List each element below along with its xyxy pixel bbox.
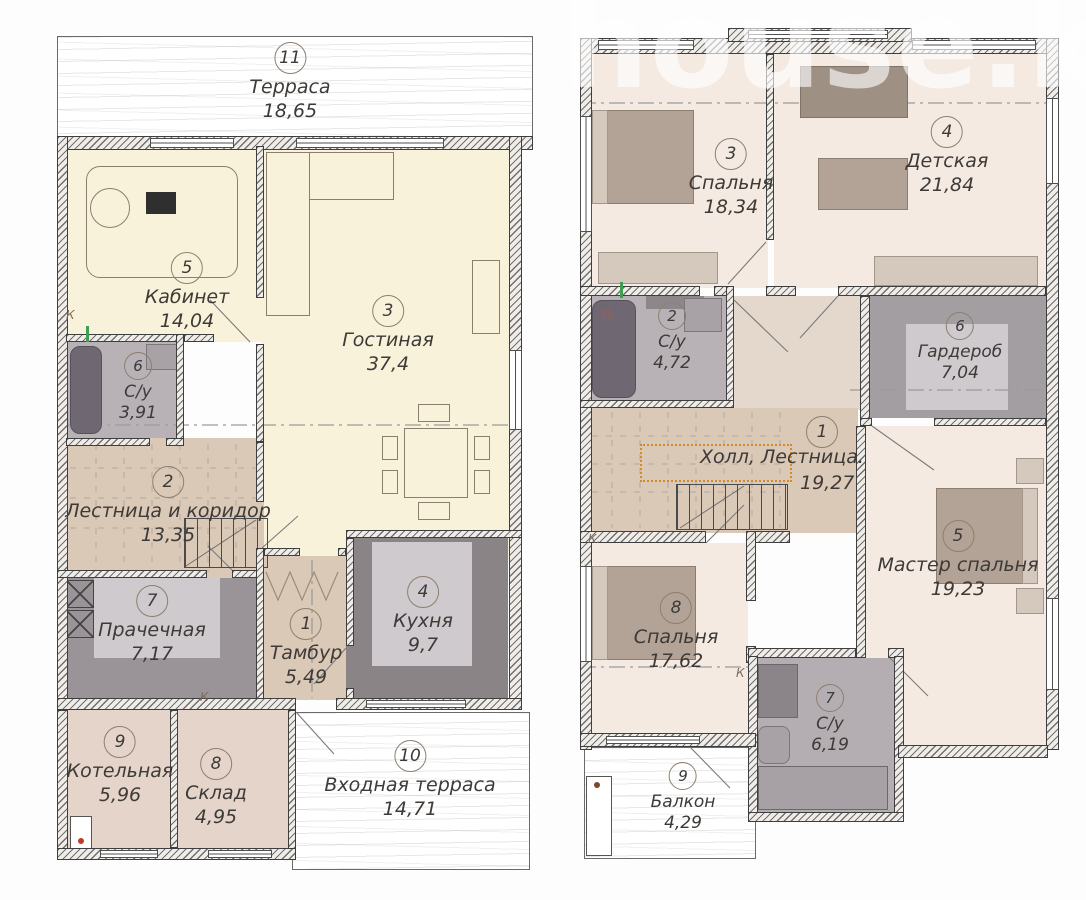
room-area: 14,71 bbox=[324, 798, 495, 822]
wall-segment bbox=[346, 538, 354, 646]
room-area: 5,49 bbox=[270, 666, 343, 690]
room-name: Балкон bbox=[651, 792, 716, 813]
monitor bbox=[146, 192, 176, 214]
room-area: 18,34 bbox=[689, 196, 774, 220]
room-number: 5 bbox=[171, 252, 203, 284]
wall-segment bbox=[766, 286, 796, 296]
room-label-kabinet: 5 Кабинет 14,04 bbox=[145, 252, 229, 334]
room-number: 6 bbox=[946, 312, 974, 340]
wall-segment bbox=[184, 334, 214, 342]
shower-tray bbox=[758, 766, 888, 810]
room-area: 4,95 bbox=[185, 806, 247, 830]
window bbox=[509, 350, 522, 430]
room-name: Гостиная bbox=[342, 329, 434, 353]
room-name: Терраса bbox=[249, 76, 330, 100]
wall-segment bbox=[726, 286, 734, 408]
room-area: 17,62 bbox=[634, 650, 719, 674]
room-number: 6 bbox=[124, 352, 152, 380]
wall-segment bbox=[860, 418, 872, 426]
room-name: Холл, Лестница. bbox=[700, 446, 864, 468]
wall-segment bbox=[934, 418, 1046, 426]
boiler-indicator bbox=[78, 838, 84, 844]
sofa bbox=[266, 152, 310, 316]
bed-pillow bbox=[592, 566, 608, 660]
room-number: 3 bbox=[372, 295, 404, 327]
wall-segment bbox=[256, 548, 264, 700]
window bbox=[748, 30, 888, 39]
wall-segment bbox=[898, 745, 1048, 758]
room-name: Кабинет bbox=[145, 286, 229, 310]
wall-segment bbox=[338, 548, 346, 556]
room-label-detskaya: 4 Детская 21,84 bbox=[906, 116, 989, 198]
wall-segment bbox=[256, 344, 264, 442]
wall-segment bbox=[894, 656, 904, 822]
chair bbox=[418, 502, 450, 520]
room-name: С/у bbox=[811, 714, 849, 735]
room-area: 21,84 bbox=[906, 174, 989, 198]
room-number: 10 bbox=[394, 740, 426, 772]
wall-segment bbox=[288, 710, 296, 850]
window bbox=[208, 850, 272, 858]
window bbox=[366, 700, 466, 708]
window bbox=[1046, 98, 1059, 184]
room-number: 7 bbox=[136, 585, 168, 617]
room-label-garderob: 6 Гардероб 7,04 bbox=[918, 312, 1003, 385]
office-chair bbox=[90, 188, 130, 228]
room-label-terrasa: 11 Терраса 18,65 bbox=[249, 42, 330, 124]
room-label-su7: 7 С/у 6,19 bbox=[811, 684, 849, 757]
vent-mark bbox=[620, 282, 623, 298]
room-area: 6,19 bbox=[811, 735, 849, 756]
room-number: 9 bbox=[669, 762, 697, 790]
shaft-symbol bbox=[66, 580, 94, 608]
shaft-symbol bbox=[66, 610, 94, 638]
window bbox=[150, 138, 234, 148]
vent-mark bbox=[86, 326, 89, 342]
room-name: Склад bbox=[185, 782, 247, 806]
room-label-prachechnaya: 7 Прачечная 7,17 bbox=[98, 585, 206, 667]
window bbox=[100, 850, 158, 858]
room-number: 3 bbox=[715, 138, 747, 170]
room-name: Лестница и коридор bbox=[65, 500, 271, 524]
wall-segment bbox=[57, 698, 296, 710]
wall-segment bbox=[57, 570, 207, 578]
room-area: 9,7 bbox=[393, 634, 453, 658]
room-label-tambur: 1 Тамбур 5,49 bbox=[270, 608, 343, 690]
room-label-spalnya8: 8 Спальня 17,62 bbox=[634, 592, 719, 674]
room-number: 2 bbox=[152, 466, 184, 498]
wardrobe bbox=[598, 252, 718, 284]
room-area: 7,17 bbox=[98, 643, 206, 667]
wardrobe bbox=[874, 256, 1038, 286]
room-number: 2 bbox=[658, 302, 686, 330]
wall-segment bbox=[256, 146, 264, 298]
washing-machine bbox=[758, 664, 798, 718]
room-number: 4 bbox=[931, 116, 963, 148]
panel-indicator bbox=[594, 782, 600, 788]
room-label-terrasa-entry: 10 Входная терраса 14,71 bbox=[324, 740, 495, 822]
wall-segment bbox=[746, 531, 756, 601]
window bbox=[296, 138, 444, 148]
room-label-su1: 6 С/у 3,91 bbox=[119, 352, 157, 425]
room-area: 19,23 bbox=[877, 578, 1038, 602]
room-label-su2: 2 С/у 4,72 bbox=[653, 302, 691, 375]
room-number: 8 bbox=[660, 592, 692, 624]
room-area: 4,72 bbox=[653, 353, 691, 374]
room-name: Спальня bbox=[634, 626, 719, 650]
wall-segment bbox=[838, 286, 1046, 296]
room-area: 14,04 bbox=[145, 310, 229, 334]
room-name: Детская bbox=[906, 150, 989, 174]
cabinet bbox=[472, 260, 500, 334]
room-name: Кухня bbox=[393, 610, 453, 634]
room-name: Гардероб bbox=[918, 342, 1003, 363]
dresser bbox=[818, 158, 908, 210]
room-area: 37,4 bbox=[342, 353, 434, 377]
window bbox=[598, 40, 694, 50]
room-number: 8 bbox=[200, 748, 232, 780]
room-name: Мастер спальня bbox=[877, 554, 1038, 578]
room-number: 7 bbox=[816, 684, 844, 712]
k-annotation: К bbox=[66, 308, 75, 322]
wall-segment bbox=[580, 400, 734, 408]
wall-segment bbox=[166, 438, 184, 446]
room-name: С/у bbox=[653, 332, 691, 353]
room-area: 7,04 bbox=[918, 363, 1003, 384]
nightstand bbox=[1016, 458, 1044, 484]
bed bbox=[800, 66, 908, 118]
room-label-kotelnaya: 9 Котельная 5,96 bbox=[67, 726, 174, 808]
wall-segment bbox=[232, 570, 257, 578]
p-annotation: П. bbox=[602, 308, 616, 323]
wall-segment bbox=[176, 334, 184, 446]
room-name: Спальня bbox=[689, 172, 774, 196]
hall-corridor bbox=[734, 296, 860, 410]
chair bbox=[474, 436, 490, 460]
room-number: 9 bbox=[104, 726, 136, 758]
wall-segment bbox=[860, 296, 870, 426]
wall-segment bbox=[748, 648, 856, 658]
room-number: 1 bbox=[290, 608, 322, 640]
room-label-spalnya3: 3 Спальня 18,34 bbox=[689, 138, 774, 220]
boiler bbox=[70, 816, 92, 850]
window bbox=[580, 566, 592, 662]
k-annotation: К. bbox=[588, 532, 600, 546]
wall-segment bbox=[57, 136, 533, 150]
bed-pillow bbox=[592, 110, 608, 204]
room-label-gostinaya: 3 Гостиная 37,4 bbox=[342, 295, 434, 377]
dining-table bbox=[404, 428, 468, 498]
k-annotation: К bbox=[200, 690, 209, 704]
wall-segment bbox=[748, 812, 904, 822]
floor-plan-sheet: 11 Терраса 18,65 5 Кабинет 14,04 3 Гости… bbox=[0, 0, 1086, 900]
room-area: 4,29 bbox=[651, 813, 716, 834]
room-area: 18,65 bbox=[249, 100, 330, 124]
room-name: Прачечная bbox=[98, 619, 206, 643]
room-area: 13,35 bbox=[65, 524, 271, 548]
chair bbox=[418, 404, 450, 422]
window bbox=[606, 736, 700, 744]
room-name: Тамбур bbox=[270, 642, 343, 666]
window bbox=[580, 116, 592, 232]
room-label-kuhnya: 4 Кухня 9,7 bbox=[393, 576, 453, 658]
chair bbox=[382, 470, 398, 494]
bathtub bbox=[70, 346, 102, 434]
room-number: 11 bbox=[274, 42, 306, 74]
room-label-koridor: 2 Лестница и коридор 13,35 bbox=[65, 466, 271, 548]
wall-segment bbox=[66, 438, 150, 446]
room-area: 3,91 bbox=[119, 403, 157, 424]
room-name: Котельная bbox=[67, 760, 174, 784]
wall-segment bbox=[57, 136, 68, 710]
wall-segment bbox=[264, 548, 300, 556]
toilet bbox=[758, 726, 790, 764]
wall-segment bbox=[346, 530, 522, 538]
stairs bbox=[676, 484, 788, 530]
k-annotation: К bbox=[736, 666, 745, 680]
room-area: 19,27 bbox=[800, 472, 854, 494]
room-label-sklad: 8 Склад 4,95 bbox=[185, 748, 247, 830]
room-number: 1 bbox=[806, 416, 838, 448]
chair bbox=[382, 436, 398, 460]
room-number: 4 bbox=[407, 576, 439, 608]
room-label-master: 5 Мастер спальня 19,23 bbox=[877, 520, 1038, 602]
room-name: Входная терраса bbox=[324, 774, 495, 798]
room-label-balkon: 9 Балкон 4,29 bbox=[651, 762, 716, 835]
utility-panel bbox=[586, 776, 612, 856]
wall-segment bbox=[580, 286, 700, 296]
window bbox=[1046, 598, 1059, 690]
wall-segment bbox=[66, 334, 184, 342]
room-name: С/у bbox=[119, 382, 157, 403]
room-area: 5,96 bbox=[67, 784, 174, 808]
window bbox=[912, 40, 1036, 50]
chair bbox=[474, 470, 490, 494]
room-number: 5 bbox=[942, 520, 974, 552]
